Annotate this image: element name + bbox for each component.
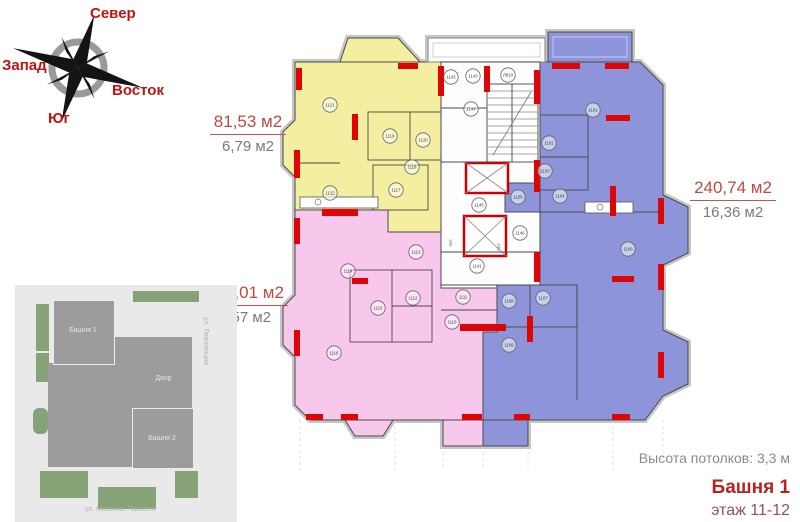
svg-text:1108: 1108 bbox=[504, 299, 514, 304]
svg-text:1141: 1141 bbox=[472, 264, 482, 269]
blue-apartment-area-label: 240,74 м2 16,36 м2 bbox=[674, 178, 792, 221]
room-1109: 1109 bbox=[502, 338, 516, 352]
room-1146: 1146 bbox=[513, 226, 527, 240]
room-1143: 1143 bbox=[466, 69, 480, 83]
yellow-balcony bbox=[340, 38, 420, 62]
room-1121: 1121 bbox=[323, 98, 337, 112]
svg-text:1146: 1146 bbox=[515, 231, 525, 236]
room-1141: 1141 bbox=[470, 259, 484, 273]
svg-text:1117: 1117 bbox=[392, 188, 402, 193]
tower-name: Башня 1 bbox=[560, 477, 790, 499]
site-tower-2-label: Башня 2 bbox=[132, 435, 192, 442]
svg-text:1105: 1105 bbox=[513, 195, 523, 200]
elevator-shaft-1 bbox=[466, 163, 508, 193]
site-courtyard-label: Двор bbox=[135, 375, 192, 382]
room-1145: 1145 bbox=[472, 198, 486, 212]
site-plan: Башня 1 Двор Башня 2 ул. Революции ул. М… bbox=[15, 285, 237, 522]
room-1116: 1116 bbox=[327, 346, 341, 360]
room-1115: 1115 bbox=[371, 301, 385, 315]
compass-north-label: Север bbox=[90, 5, 136, 22]
room-1103: 1103 bbox=[538, 164, 552, 178]
svg-text:1102: 1102 bbox=[544, 141, 554, 146]
svg-text:1118: 1118 bbox=[408, 165, 418, 170]
svg-text:1122: 1122 bbox=[325, 191, 335, 196]
room-1108: 1108 bbox=[502, 294, 516, 308]
green-area bbox=[133, 291, 199, 302]
top-white-balcony bbox=[428, 38, 545, 62]
ceiling-height-label: Высота потолков: 3,3 м bbox=[560, 450, 790, 466]
svg-text:1109: 1109 bbox=[504, 343, 514, 348]
room-1144: 1144 bbox=[464, 102, 478, 116]
svg-text:1113: 1113 bbox=[412, 250, 422, 255]
green-area bbox=[36, 304, 49, 351]
bottom-balcony-pink bbox=[443, 420, 483, 446]
street-gorkogo-label: ул. Максима Горького bbox=[45, 506, 195, 513]
room-1113: 1113 bbox=[409, 245, 423, 259]
room-1114: 1114 bbox=[341, 264, 355, 278]
svg-text:1143: 1143 bbox=[468, 74, 478, 79]
svg-text:1142: 1142 bbox=[446, 75, 456, 80]
svg-text:1103: 1103 bbox=[540, 169, 550, 174]
area-total: 81,53 м2 bbox=[210, 112, 286, 135]
elevator-number-label: №5 bbox=[448, 239, 453, 247]
room-1142: 1142 bbox=[444, 70, 458, 84]
area-secondary: 6,79 м2 bbox=[202, 138, 294, 155]
svg-text:ЛК10: ЛК10 bbox=[503, 73, 514, 78]
svg-text:1115: 1115 bbox=[374, 306, 384, 311]
area-secondary: 16,36 м2 bbox=[674, 204, 792, 221]
svg-text:1120: 1120 bbox=[418, 138, 428, 143]
info-block: Высота потолков: 3,3 м Башня 1 этаж 11-1… bbox=[560, 450, 790, 520]
room-1110: 1110 bbox=[445, 315, 459, 329]
compass-west-label: Запад bbox=[2, 57, 47, 74]
floor-range: этаж 11-12 bbox=[560, 502, 790, 520]
svg-text:1106: 1106 bbox=[623, 247, 633, 252]
green-area bbox=[33, 408, 48, 434]
compass-south-label: Юг bbox=[48, 110, 70, 127]
svg-text:1114: 1114 bbox=[344, 269, 354, 274]
page: 1121111911201118111711221113111411121115… bbox=[0, 0, 800, 522]
elevator-number-label: №3 bbox=[496, 243, 501, 251]
svg-text:1110: 1110 bbox=[448, 320, 458, 325]
yellow-apartment-area-label: 81,53 м2 6,79 м2 bbox=[202, 112, 294, 155]
room-1118: 1118 bbox=[405, 160, 419, 174]
svg-text:1145: 1145 bbox=[474, 203, 484, 208]
room-1120: 1120 bbox=[416, 133, 430, 147]
room-1102: 1102 bbox=[542, 136, 556, 150]
street-revolutsii-label: ул. Революции bbox=[202, 317, 209, 365]
svg-text:1104: 1104 bbox=[555, 194, 565, 199]
room-1117: 1117 bbox=[389, 183, 403, 197]
room-ЛК10: ЛК10 bbox=[501, 68, 515, 82]
room-1111: 1111 bbox=[456, 290, 470, 304]
site-tower-1-label: Башня 1 bbox=[53, 327, 113, 334]
svg-text:1112: 1112 bbox=[409, 296, 419, 301]
room-1112: 1112 bbox=[406, 291, 420, 305]
room-1106: 1106 bbox=[621, 242, 635, 256]
room-1119: 1119 bbox=[383, 129, 397, 143]
compass-rose: Север Запад Восток Юг bbox=[0, 0, 190, 135]
room-1122: 1122 bbox=[323, 186, 337, 200]
svg-text:1119: 1119 bbox=[386, 134, 396, 139]
room-1101: 1101 bbox=[586, 103, 600, 117]
room-1107: 1107 bbox=[536, 291, 550, 305]
svg-text:1121: 1121 bbox=[325, 103, 335, 108]
room-1104: 1104 bbox=[553, 189, 567, 203]
compass-east-label: Восток bbox=[112, 82, 164, 99]
svg-text:1116: 1116 bbox=[330, 351, 340, 356]
green-area bbox=[175, 471, 198, 498]
svg-text:1144: 1144 bbox=[466, 107, 476, 112]
stairwell bbox=[487, 84, 538, 162]
room-1105: 1105 bbox=[511, 190, 525, 204]
area-total: 240,74 м2 bbox=[690, 178, 776, 201]
bottom-balcony-blue bbox=[483, 420, 528, 446]
svg-text:1107: 1107 bbox=[538, 296, 548, 301]
svg-text:1101: 1101 bbox=[588, 108, 598, 113]
green-area bbox=[40, 471, 88, 498]
svg-text:1111: 1111 bbox=[459, 295, 468, 300]
